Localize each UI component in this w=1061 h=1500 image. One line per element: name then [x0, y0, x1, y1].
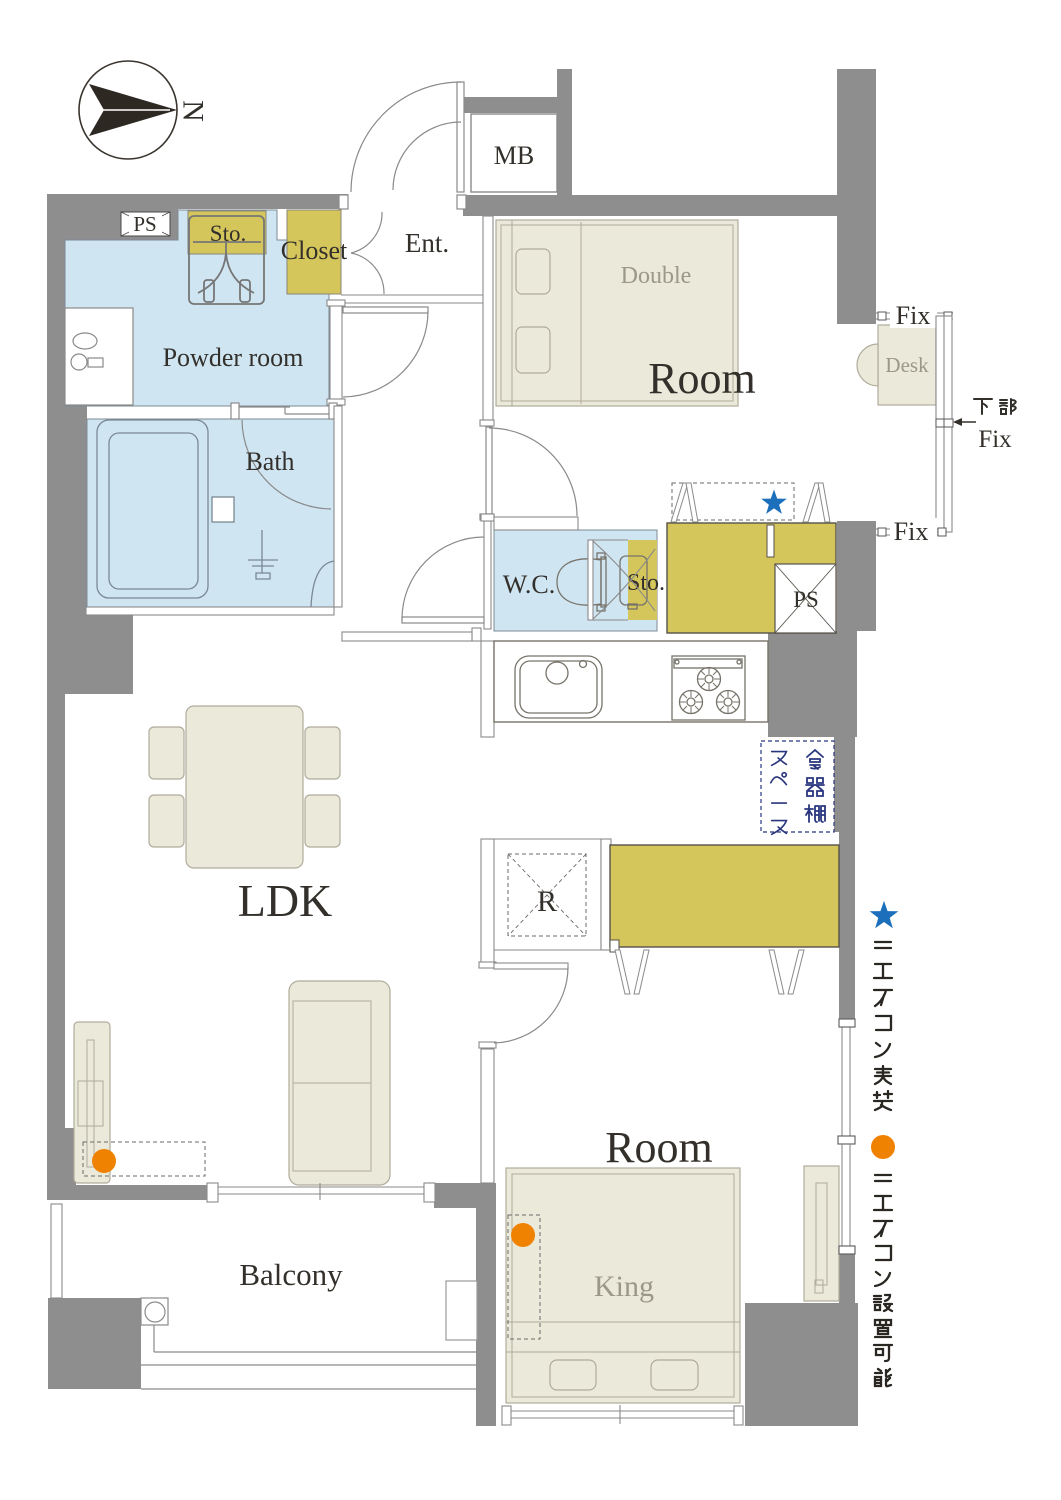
svg-text:R: R	[537, 885, 557, 918]
svg-text:N: N	[177, 100, 210, 122]
svg-text:Fix: Fix	[894, 517, 929, 546]
svg-text:PS: PS	[133, 212, 156, 236]
svg-text:Fix: Fix	[896, 301, 931, 330]
svg-text:Room: Room	[648, 354, 756, 403]
svg-text:Room: Room	[605, 1123, 713, 1172]
svg-text:Fix: Fix	[978, 426, 1012, 453]
svg-text:Closet: Closet	[281, 236, 348, 265]
svg-text:Double: Double	[621, 263, 692, 289]
svg-text:Ent.: Ent.	[405, 228, 449, 258]
svg-text:Desk: Desk	[885, 353, 929, 377]
svg-text:PS: PS	[793, 587, 819, 612]
svg-text:Balcony: Balcony	[239, 1257, 343, 1292]
svg-text:Powder room: Powder room	[163, 343, 304, 372]
svg-text:Sto.: Sto.	[627, 570, 665, 596]
svg-text:LDK: LDK	[238, 875, 333, 926]
svg-text:MB: MB	[494, 141, 534, 170]
svg-text:King: King	[594, 1270, 654, 1303]
svg-text:W.C.: W.C.	[503, 570, 556, 599]
svg-text:Bath: Bath	[245, 447, 294, 476]
